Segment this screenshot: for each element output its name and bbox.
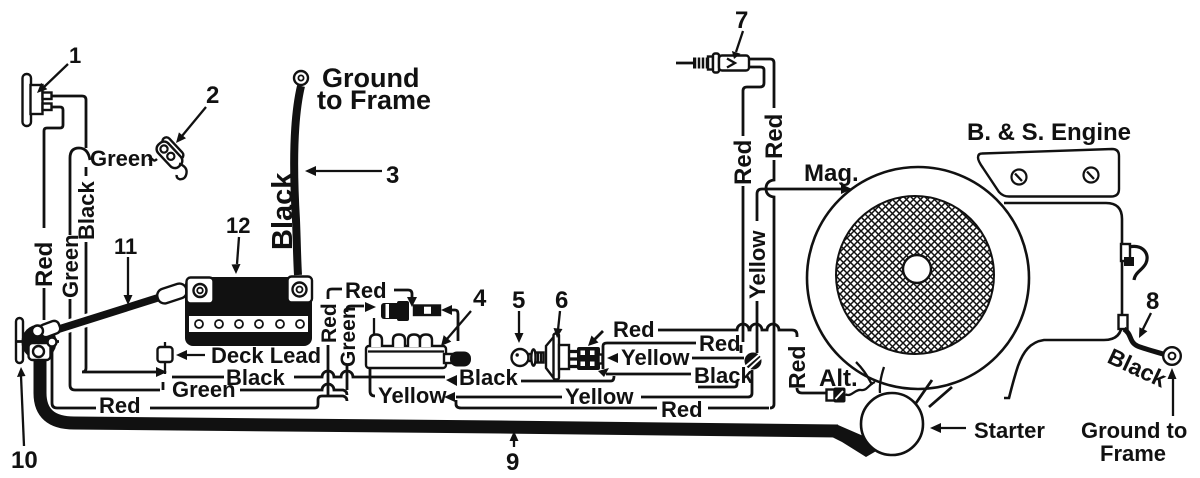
svg-text:6: 6 bbox=[555, 287, 568, 314]
svg-text:Black: Black bbox=[459, 365, 518, 390]
svg-text:Red: Red bbox=[761, 114, 788, 159]
svg-text:Yellow: Yellow bbox=[565, 384, 634, 409]
svg-text:Black: Black bbox=[267, 172, 299, 250]
svg-text:Yellow: Yellow bbox=[378, 383, 447, 408]
svg-text:7: 7 bbox=[735, 7, 748, 34]
svg-text:Yellow: Yellow bbox=[621, 345, 690, 370]
svg-text:1: 1 bbox=[69, 43, 81, 68]
svg-text:Starter: Starter bbox=[974, 418, 1045, 443]
svg-text:11: 11 bbox=[114, 234, 137, 259]
svg-text:Deck Lead: Deck Lead bbox=[211, 343, 321, 368]
svg-text:Ground to: Ground to bbox=[1081, 418, 1187, 443]
svg-text:to Frame: to Frame bbox=[317, 85, 431, 115]
svg-text:Red: Red bbox=[699, 331, 741, 356]
svg-text:Black: Black bbox=[226, 365, 285, 390]
svg-text:Mag.: Mag. bbox=[804, 160, 859, 187]
svg-text:Red: Red bbox=[784, 346, 810, 389]
svg-text:Red: Red bbox=[730, 140, 757, 185]
svg-text:8: 8 bbox=[1146, 288, 1159, 315]
svg-text:10: 10 bbox=[11, 447, 38, 474]
svg-text:4: 4 bbox=[473, 285, 487, 312]
svg-text:Red: Red bbox=[99, 393, 141, 418]
svg-text:Green: Green bbox=[58, 234, 83, 298]
svg-text:Frame: Frame bbox=[1100, 441, 1166, 466]
svg-text:Black: Black bbox=[694, 363, 753, 388]
svg-text:3: 3 bbox=[386, 162, 399, 189]
svg-text:Green: Green bbox=[337, 306, 360, 367]
svg-text:2: 2 bbox=[206, 82, 219, 109]
svg-text:Red: Red bbox=[345, 278, 387, 303]
svg-text:B. & S. Engine: B. & S. Engine bbox=[967, 119, 1131, 146]
svg-text:9: 9 bbox=[506, 449, 519, 476]
svg-text:Green: Green bbox=[90, 146, 154, 171]
svg-text:Red: Red bbox=[661, 397, 703, 422]
svg-text:5: 5 bbox=[512, 287, 525, 314]
svg-text:Yellow: Yellow bbox=[745, 230, 770, 299]
svg-text:Alt.: Alt. bbox=[819, 365, 858, 392]
svg-text:12: 12 bbox=[226, 213, 250, 238]
svg-text:Black: Black bbox=[74, 181, 99, 240]
svg-text:Red: Red bbox=[31, 242, 58, 287]
svg-text:Red: Red bbox=[613, 317, 655, 342]
